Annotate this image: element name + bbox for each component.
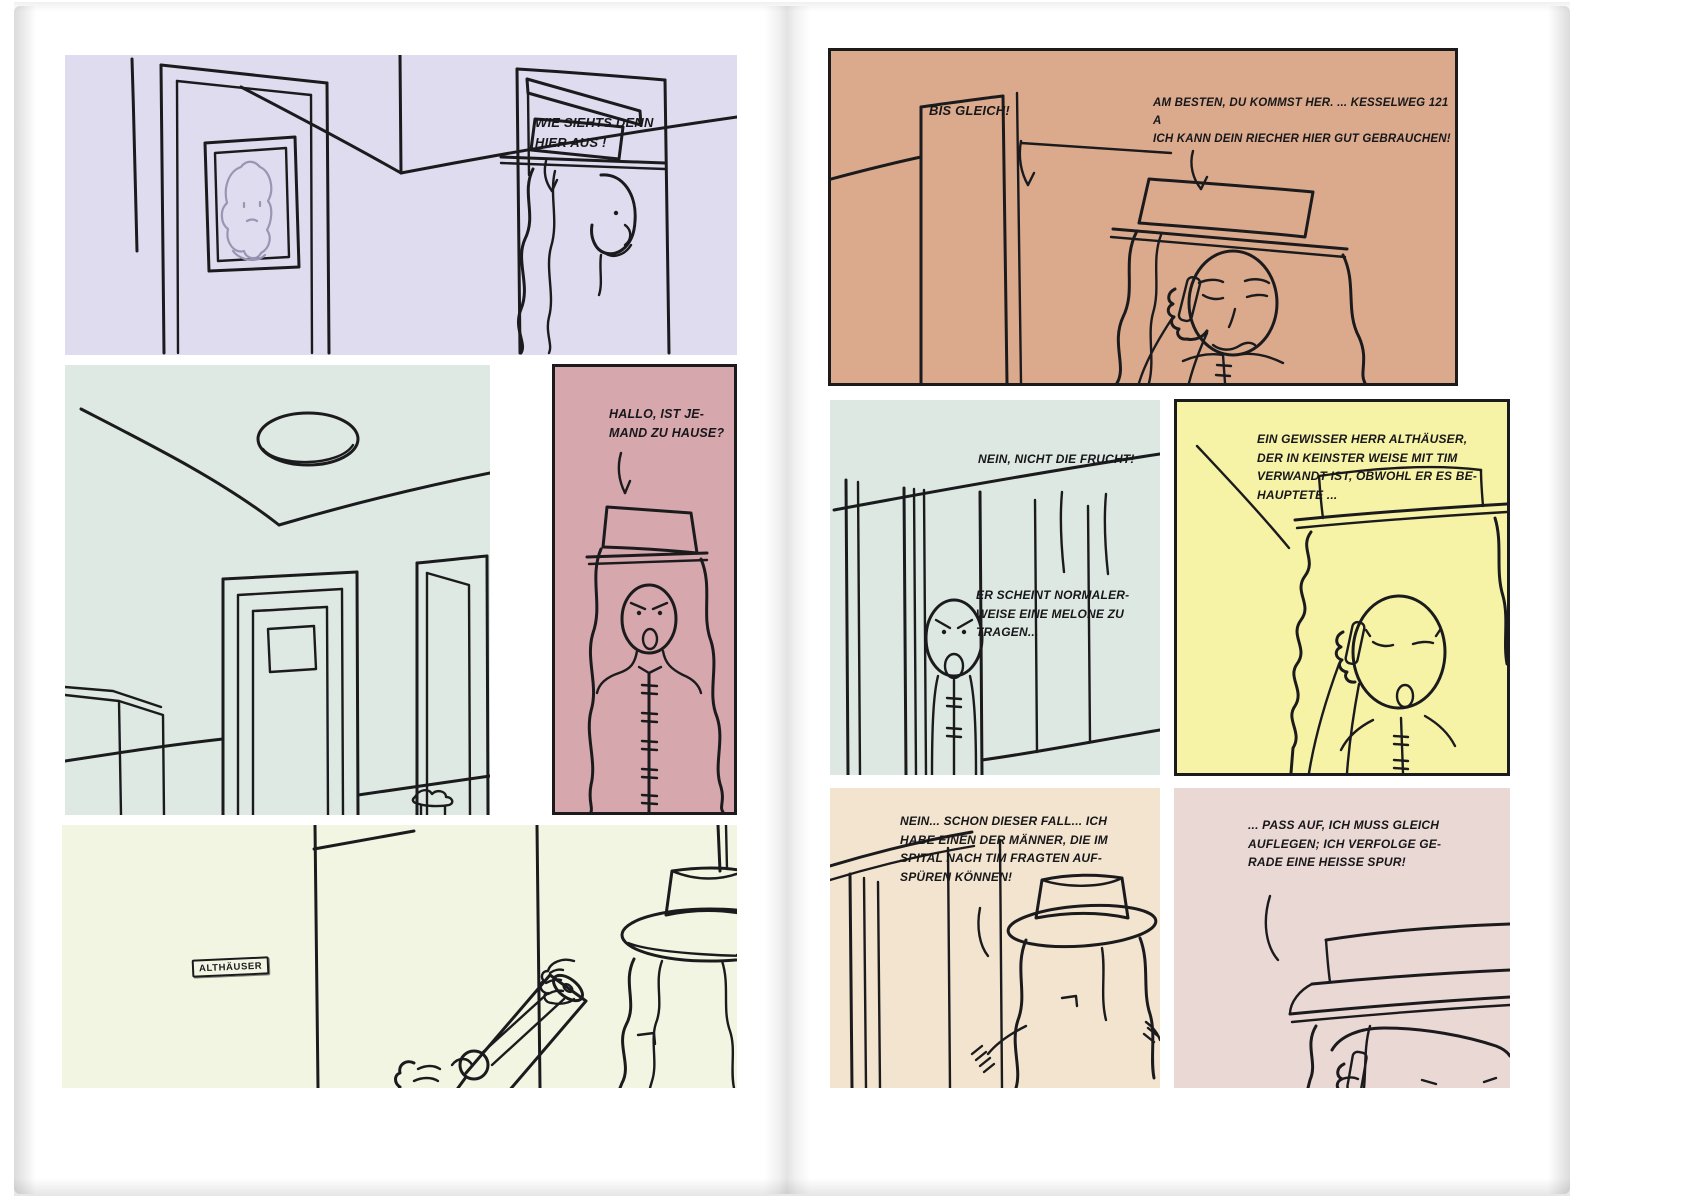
page-gutter xyxy=(764,6,810,1194)
speech-hallo: HALLO, IST JE- MAND ZU HAUSE? xyxy=(609,405,724,444)
nameplate-althaeuser: ALTHÄUSER xyxy=(192,956,270,977)
speech-gewisser-herr: EIN GEWISSER HERR ALTHÄUSER, DER IN KEIN… xyxy=(1257,430,1477,504)
panel-phone-invitation: BIS GLEICH! AM BESTEN, DU KOMMST HER. ..… xyxy=(828,48,1458,386)
panel-peeking-man: NEIN, NICHT DIE FRUCHT! ER SCHEINT NORMA… xyxy=(830,400,1160,775)
page-edge-shadow-right xyxy=(1548,6,1570,1194)
comic-spread: WIE SIEHTS DENN HIER AUS ! xyxy=(0,0,1698,1200)
speech-melone: ER SCHEINT NORMALER- WEISE EINE MELONE Z… xyxy=(976,586,1129,642)
panel-hallway-entrance: WIE SIEHTS DENN HIER AUS ! xyxy=(65,55,737,355)
speech-bis-gleich: BIS GLEICH! xyxy=(929,101,1010,121)
speech-nicht-die-frucht: NEIN, NICHT DIE FRUCHT! xyxy=(978,450,1135,469)
speech-heisse-spur: ... PASS AUF, ICH MUSS GLEICH AUFLEGEN; … xyxy=(1248,816,1441,872)
hallway-drawing xyxy=(65,55,737,355)
panel-hot-lead: ... PASS AUF, ICH MUSS GLEICH AUFLEGEN; … xyxy=(1174,788,1510,1088)
speech-kesselweg: AM BESTEN, DU KOMMST HER. ... KESSELWEG … xyxy=(1153,95,1455,148)
panel-woman-calling: HALLO, IST JE- MAND ZU HAUSE? xyxy=(552,364,737,815)
speech-spital: NEIN... SCHON DIESER FALL... ICH HABE EI… xyxy=(900,812,1108,886)
panel-empty-corridor xyxy=(65,365,490,815)
panel-gun-hand: ALTHÄUSER xyxy=(62,825,737,1088)
panel-althaeuser-call: EIN GEWISSER HERR ALTHÄUSER, DER IN KEIN… xyxy=(1174,399,1510,776)
gun-scene-drawing xyxy=(62,825,737,1088)
page-edge-shadow-left xyxy=(14,6,36,1194)
speech-wie-siehts: WIE SIEHTS DENN HIER AUS ! xyxy=(535,113,654,153)
panel-figure-behind: NEIN... SCHON DIESER FALL... ICH HABE EI… xyxy=(830,788,1160,1088)
corridor-drawing xyxy=(65,365,490,815)
